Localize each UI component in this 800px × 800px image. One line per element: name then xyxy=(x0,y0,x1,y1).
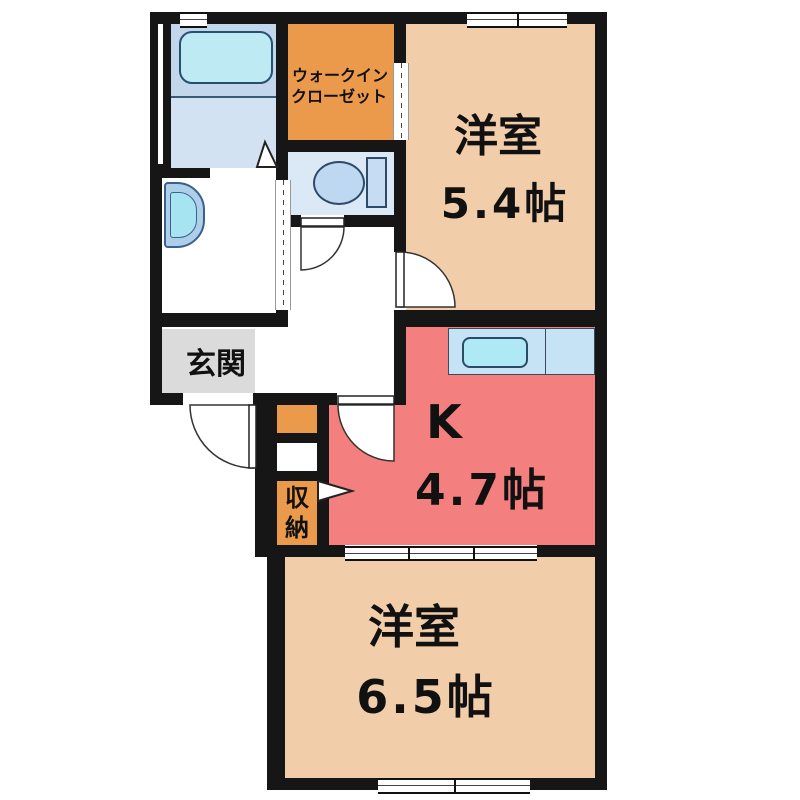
floor-plan: ウォークイン クローゼット 洋室 5.4帖 K 4.7帖 玄関 収納 洋室 6.… xyxy=(0,0,800,800)
wall-kitchen-room2-right xyxy=(537,545,607,557)
western-room-1-size: 5.4帖 xyxy=(441,183,569,225)
wall-washroom-bottom xyxy=(150,313,277,327)
entrance-label: 玄関 xyxy=(186,350,246,380)
wall-outer-left-mid xyxy=(255,393,277,557)
wall-outer-right xyxy=(595,12,607,790)
room1-door-leaf xyxy=(396,252,404,307)
wall-kitchen-room2-left xyxy=(255,545,345,557)
storage-label: 収納 xyxy=(284,483,310,543)
wall-entrance-left-stub xyxy=(150,393,183,405)
closet-sliding-door xyxy=(393,63,409,140)
room2-bottom-window xyxy=(378,778,530,794)
wall-room1-left-top xyxy=(394,12,406,63)
wall-storage-right xyxy=(317,393,329,557)
wall-bath-hall-lower xyxy=(276,310,288,327)
wall-room1-kitchen xyxy=(394,310,607,327)
walk-in-closet-label-line2: クローゼット xyxy=(291,89,387,105)
bathroom-lower-floor xyxy=(171,96,277,168)
bathroom-window xyxy=(180,12,207,28)
wall-bath-hall-upper xyxy=(276,12,288,180)
wall-closet-bottom xyxy=(276,140,406,152)
western-room-2-floor xyxy=(285,557,595,778)
western-room-2-size: 6.5帖 xyxy=(356,674,496,720)
entrance-door-swing xyxy=(190,405,253,468)
wall-storage-div1 xyxy=(277,433,317,443)
bathtub-icon xyxy=(179,31,273,84)
wall-entrance-right-stub xyxy=(253,393,283,405)
wall-room1-left-mid xyxy=(394,140,406,252)
washbasin-bowl-icon xyxy=(170,192,197,238)
kitchen-size: 4.7帖 xyxy=(415,469,549,513)
wall-outer-left-lower xyxy=(267,545,285,790)
western-room-1-floor xyxy=(406,24,595,310)
walk-in-closet-label-line1: ウォークイン xyxy=(292,68,388,84)
bathroom-wall-slit-window xyxy=(158,24,163,164)
wall-bath-washroom xyxy=(162,168,210,178)
wall-outer-left-washroom xyxy=(150,178,162,405)
wall-storage-div2 xyxy=(277,471,317,481)
kitchen-door-leaf xyxy=(338,396,394,404)
toilet-tank-icon xyxy=(366,157,387,208)
storage-cell-top xyxy=(277,405,317,433)
toilet-door-swing xyxy=(301,227,344,270)
storage-cell-middle xyxy=(277,443,317,471)
western-room-2-label: 洋室 xyxy=(368,604,460,650)
counter-divider xyxy=(545,329,546,374)
kitchen-sink-icon xyxy=(462,337,528,368)
kitchen-label: K xyxy=(426,399,462,445)
washroom-sliding-door xyxy=(275,180,291,310)
kitchen-room2-window xyxy=(345,546,537,561)
wall-hall-kitchen xyxy=(394,327,406,405)
room1-top-window xyxy=(467,12,567,28)
toilet-bowl-icon xyxy=(313,161,365,205)
western-room-1-label: 洋室 xyxy=(454,115,542,159)
toilet-door-leaf xyxy=(301,218,344,226)
